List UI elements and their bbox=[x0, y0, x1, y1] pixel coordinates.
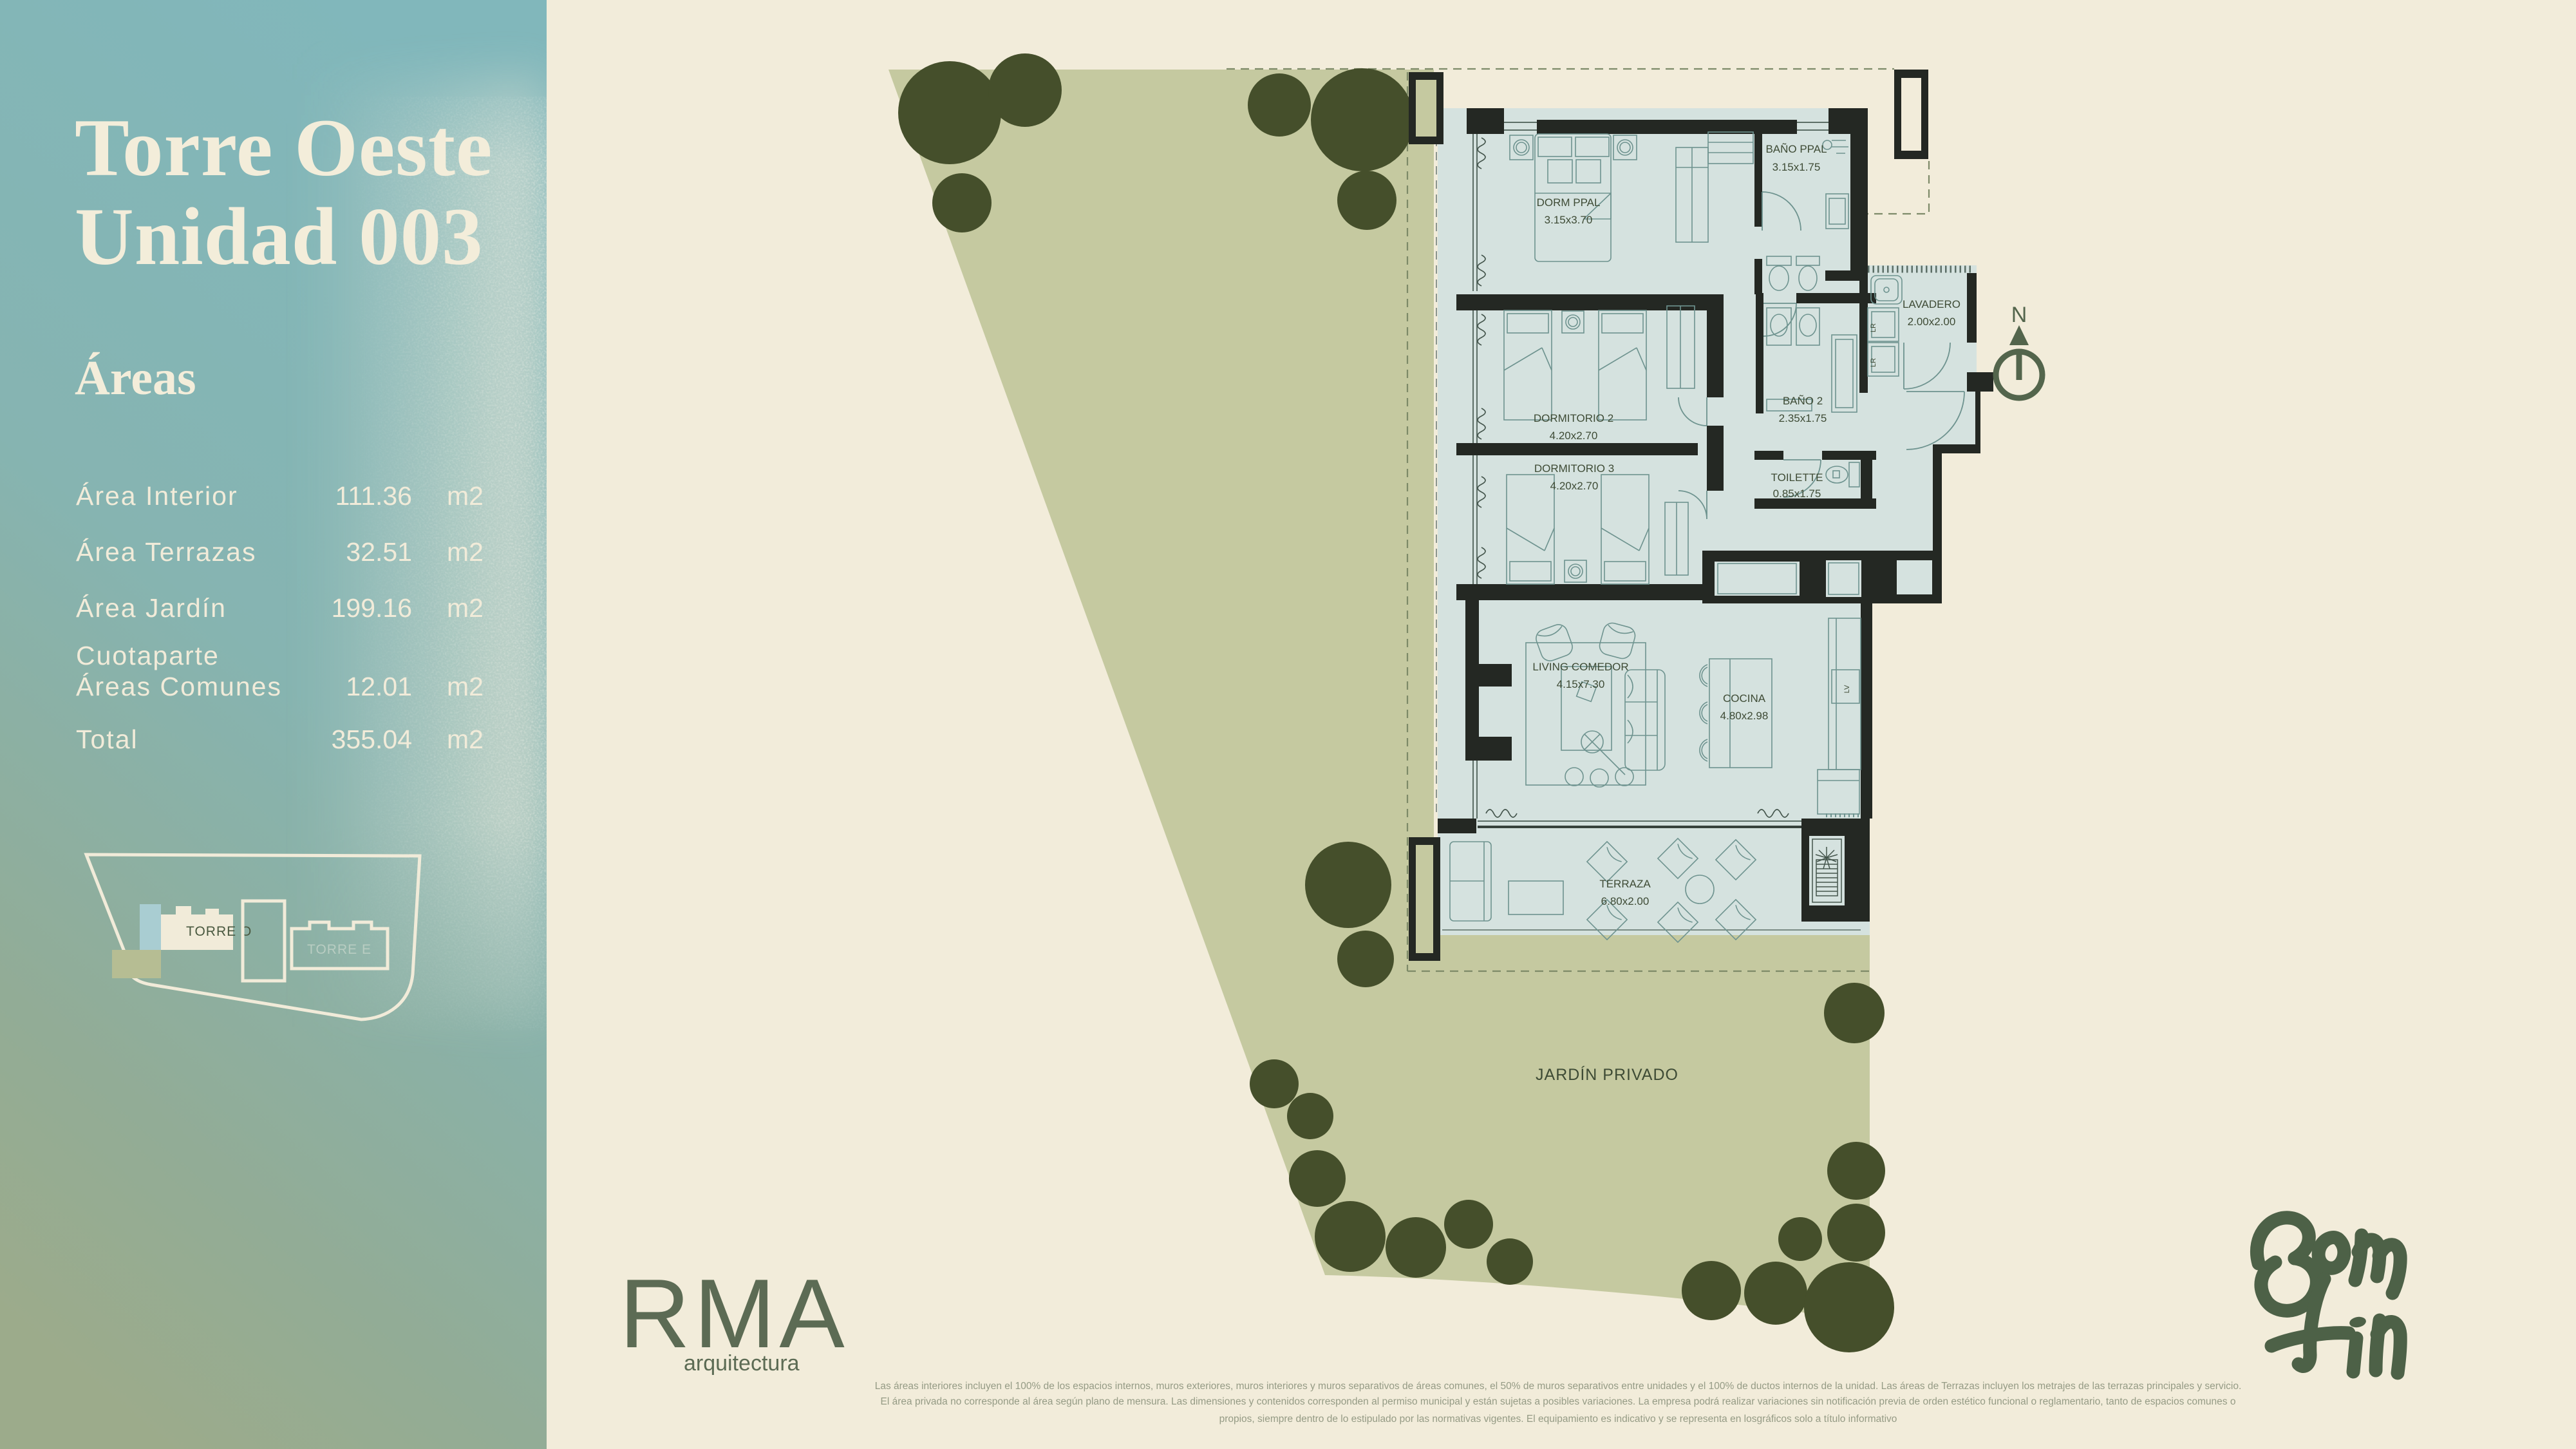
svg-text:LR: LR bbox=[1870, 323, 1877, 332]
svg-text:2.35x1.75: 2.35x1.75 bbox=[1779, 412, 1827, 424]
svg-text:Áreas: Áreas bbox=[75, 351, 196, 405]
svg-text:m2: m2 bbox=[447, 724, 484, 754]
svg-text:m2: m2 bbox=[447, 672, 484, 701]
svg-text:JARDÍN PRIVADO: JARDÍN PRIVADO bbox=[1536, 1065, 1678, 1084]
svg-text:Unidad 003: Unidad 003 bbox=[75, 192, 484, 282]
svg-text:TOILETTE: TOILETTE bbox=[1771, 471, 1823, 484]
svg-text:32.51: 32.51 bbox=[346, 537, 412, 567]
svg-text:Torre Oeste: Torre Oeste bbox=[75, 103, 493, 193]
svg-text:N: N bbox=[2011, 303, 2027, 327]
svg-text:BAÑO 2: BAÑO 2 bbox=[1783, 395, 1823, 407]
svg-text:BAÑO PPAL: BAÑO PPAL bbox=[1765, 143, 1827, 155]
svg-text:4.20x2.70: 4.20x2.70 bbox=[1550, 480, 1599, 492]
svg-text:El área privada no corresponde: El área privada no corresponde al área s… bbox=[881, 1396, 2236, 1407]
svg-text:2.00x2.00: 2.00x2.00 bbox=[1908, 316, 1956, 328]
svg-text:0.85x1.75: 0.85x1.75 bbox=[1773, 488, 1821, 500]
svg-text:199.16: 199.16 bbox=[332, 593, 412, 623]
svg-text:Área Terrazas: Área Terrazas bbox=[76, 537, 256, 567]
svg-text:Total: Total bbox=[76, 724, 138, 754]
svg-text:4.80x2.98: 4.80x2.98 bbox=[1720, 710, 1769, 722]
svg-text:LAVADERO: LAVADERO bbox=[1903, 298, 1960, 310]
svg-text:Área Jardín: Área Jardín bbox=[76, 593, 227, 623]
svg-text:111.36: 111.36 bbox=[335, 481, 412, 511]
svg-text:12.01: 12.01 bbox=[346, 672, 412, 701]
svg-text:TORRE E: TORRE E bbox=[307, 942, 371, 957]
svg-text:DORMITORIO 3: DORMITORIO 3 bbox=[1534, 462, 1614, 475]
svg-text:arquitectura: arquitectura bbox=[684, 1351, 800, 1376]
svg-text:Área Interior: Área Interior bbox=[76, 481, 238, 511]
svg-text:COCINA: COCINA bbox=[1723, 692, 1766, 705]
svg-text:LIVING COMEDOR: LIVING COMEDOR bbox=[1532, 661, 1628, 673]
svg-text:355.04: 355.04 bbox=[332, 724, 412, 754]
svg-text:m2: m2 bbox=[447, 537, 484, 567]
svg-text:6.80x2.00: 6.80x2.00 bbox=[1601, 895, 1650, 907]
svg-text:Áreas Comunes: Áreas Comunes bbox=[76, 672, 282, 701]
svg-text:Las áreas interiores incluyen: Las áreas interiores incluyen el 100% de… bbox=[875, 1381, 2242, 1392]
svg-text:DORMITORIO 2: DORMITORIO 2 bbox=[1534, 412, 1613, 424]
svg-text:m2: m2 bbox=[447, 593, 484, 623]
svg-text:propios, siempre dentro de lo: propios, siempre dentro de lo estipulado… bbox=[1219, 1414, 1897, 1425]
svg-text:DORM PPAL: DORM PPAL bbox=[1537, 196, 1601, 209]
svg-text:Cuotaparte: Cuotaparte bbox=[76, 641, 220, 670]
svg-text:4.20x2.70: 4.20x2.70 bbox=[1550, 430, 1598, 442]
svg-text:3.15x3.70: 3.15x3.70 bbox=[1545, 214, 1593, 226]
svg-text:LR: LR bbox=[1870, 358, 1877, 367]
svg-text:LV: LV bbox=[1843, 685, 1851, 693]
svg-text:TERRAZA: TERRAZA bbox=[1599, 878, 1651, 890]
svg-text:4.15x7.30: 4.15x7.30 bbox=[1557, 678, 1605, 690]
svg-text:3.15x1.75: 3.15x1.75 bbox=[1772, 161, 1821, 173]
svg-text:m2: m2 bbox=[447, 481, 484, 511]
